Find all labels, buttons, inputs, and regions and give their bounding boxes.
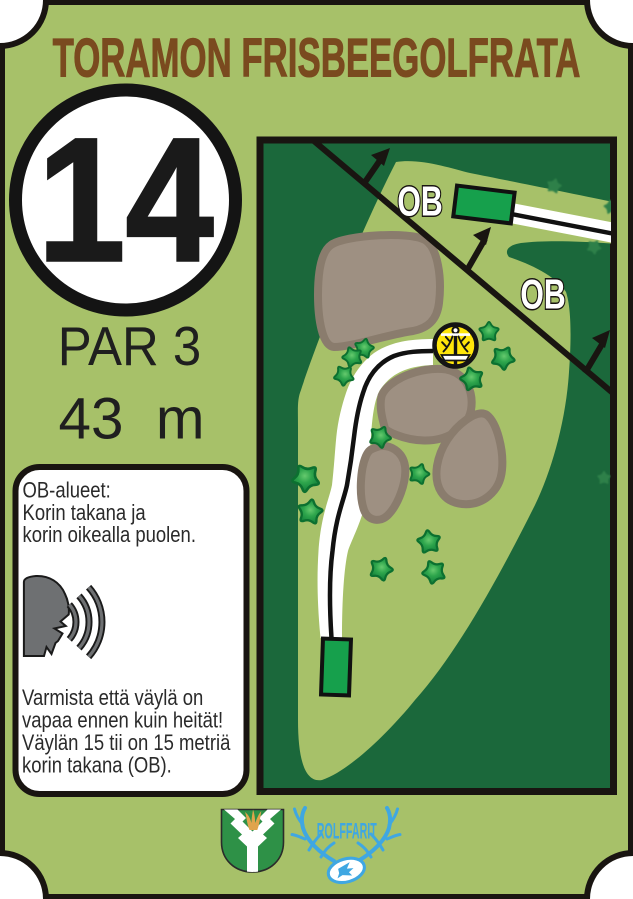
svg-text:OB: OB xyxy=(520,271,565,318)
svg-text:14: 14 xyxy=(37,102,213,299)
svg-text:Korin takana ja: Korin takana ja xyxy=(23,501,147,525)
svg-text:korin oikealla puolen.: korin oikealla puolen. xyxy=(23,524,196,548)
svg-text:43 m: 43 m xyxy=(58,387,204,452)
svg-text:korin takana (OB).: korin takana (OB). xyxy=(22,754,172,778)
svg-text:OB: OB xyxy=(397,178,442,225)
svg-text:ROLFFARIT: ROLFFARIT xyxy=(317,819,377,844)
svg-text:TORAMON FRISBEEGOLFRATA: TORAMON FRISBEEGOLFRATA xyxy=(53,26,581,88)
svg-text:Varmista että väylä on: Varmista että väylä on xyxy=(22,687,203,711)
svg-text:Väylän 15 tii on 15 metriä: Väylän 15 tii on 15 metriä xyxy=(22,732,231,756)
svg-text:OB-alueet:: OB-alueet: xyxy=(23,479,111,503)
svg-text:vapaa ennen kuin heität!: vapaa ennen kuin heität! xyxy=(22,709,223,733)
svg-text:PAR 3: PAR 3 xyxy=(58,316,201,377)
